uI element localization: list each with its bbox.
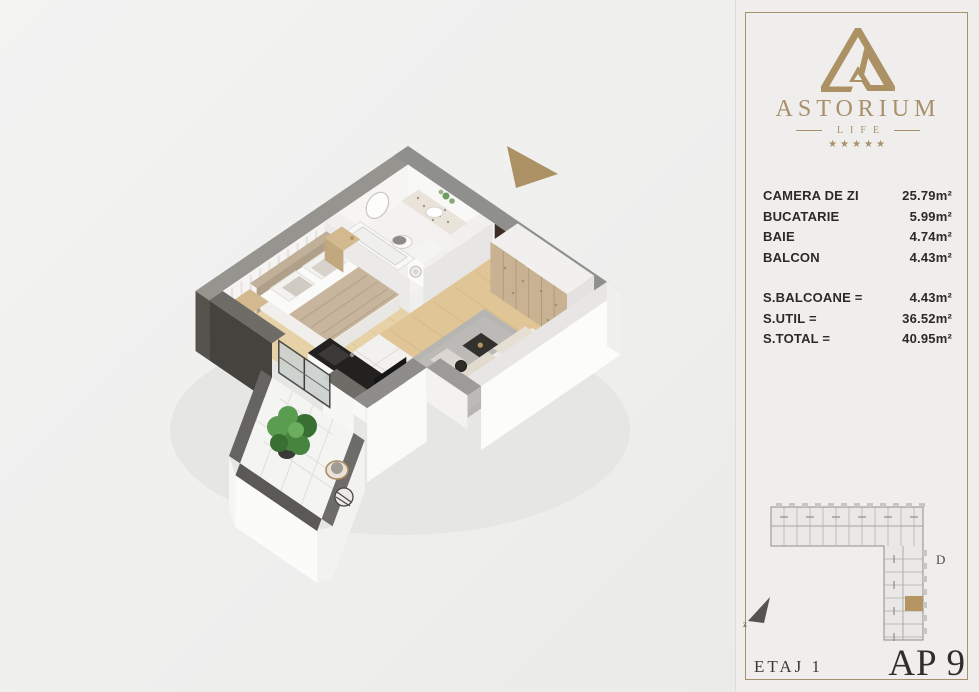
sink-icon — [426, 207, 443, 217]
compass-z-label: z — [743, 619, 747, 629]
total-label: S.UTIL = — [763, 311, 817, 326]
room-label: BALCON — [763, 250, 820, 265]
room-value: 4.74m² — [910, 229, 952, 244]
terrazzo-dot — [447, 221, 449, 223]
north-arrow-icon — [507, 146, 558, 188]
wood-knot — [504, 267, 507, 270]
balcony-tick — [923, 563, 927, 569]
building-footprint-icon: z — [736, 495, 979, 650]
apartment-number: AP 9 — [888, 642, 966, 685]
room-label: CAMERA DE ZI — [763, 188, 859, 203]
brand-logo: ASTORIUM LIFE ★★★★★ — [736, 28, 979, 150]
wood-knot — [547, 319, 550, 322]
balcony-tick — [893, 503, 899, 507]
building-outline — [771, 507, 923, 640]
terrazzo-dot — [423, 205, 425, 207]
room-value: 25.79m² — [902, 188, 952, 203]
balcony-plant-icon — [290, 435, 310, 455]
astorium-logo-icon — [821, 28, 895, 92]
room-row: BALCON4.43m² — [763, 250, 952, 271]
balcony-tick — [919, 503, 925, 507]
subtitle-dash-left — [796, 130, 822, 131]
balcony-tick — [923, 589, 927, 595]
room-label: BUCATARIE — [763, 209, 839, 224]
total-row: S.TOTAL =40.95m² — [763, 331, 952, 352]
wall-e-cap — [607, 282, 621, 355]
balcony-tick — [923, 602, 927, 608]
room-value: 4.43m² — [910, 250, 952, 265]
totals-table: S.BALCOANE =4.43m²S.UTIL =36.52m²S.TOTAL… — [763, 290, 952, 352]
balcony-tick — [776, 503, 782, 507]
balcony-tick — [802, 503, 808, 507]
room-row: BAIE4.74m² — [763, 229, 952, 250]
total-row: S.UTIL =36.52m² — [763, 311, 952, 332]
total-row: S.BALCOANE =4.43m² — [763, 290, 952, 311]
balcony-tick — [828, 503, 834, 507]
info-panel: ASTORIUM LIFE ★★★★★ CAMERA DE ZI25.79m²B… — [735, 0, 979, 692]
balcony-tick — [906, 503, 912, 507]
compass-icon — [748, 597, 770, 623]
balcony-plant-icon — [288, 422, 304, 438]
terrazzo-dot — [432, 219, 434, 221]
balcony-tick — [815, 503, 821, 507]
wood-knot — [512, 292, 515, 295]
room-label: BAIE — [763, 229, 795, 244]
balcony-tick — [789, 503, 795, 507]
wood-knot — [540, 290, 543, 293]
room-row: CAMERA DE ZI25.79m² — [763, 188, 952, 209]
brand-name: ASTORIUM — [736, 96, 979, 123]
section-label: D — [936, 552, 945, 568]
table-decor-icon — [478, 343, 483, 348]
terrazzo-dot — [417, 197, 419, 199]
room-value: 5.99m² — [910, 209, 952, 224]
building-minimap: z D — [736, 495, 979, 650]
subtitle-dash-right — [894, 130, 920, 131]
wood-knot — [555, 304, 558, 307]
total-value: 4.43m² — [910, 290, 952, 305]
toilet-lid — [393, 236, 407, 245]
total-label: S.TOTAL = — [763, 331, 830, 346]
apartment-isometric-drawing — [0, 0, 735, 692]
brand-subtitle: LIFE — [736, 125, 979, 136]
plant-flowers — [439, 190, 444, 195]
floorplan-render — [0, 0, 735, 692]
balcony-plant-icon — [270, 434, 288, 452]
sink-faucet-icon — [350, 353, 354, 357]
balcony-tick — [867, 503, 873, 507]
lamp-icon — [350, 236, 354, 240]
balcony-tick — [923, 628, 927, 634]
total-label: S.BALCOANE = — [763, 290, 863, 305]
wood-knot — [522, 280, 525, 283]
wall-west-cap — [196, 291, 210, 360]
balcony-tick — [854, 503, 860, 507]
room-row: BUCATARIE5.99m² — [763, 209, 952, 230]
washer-door-inner — [413, 269, 418, 274]
chair-cushion — [331, 462, 343, 474]
total-value: 40.95m² — [902, 331, 952, 346]
balcony-tick — [923, 550, 927, 556]
balcony-tick — [923, 576, 927, 582]
floor-label: ETAJ 1 — [754, 657, 823, 677]
total-value: 36.52m² — [902, 311, 952, 326]
plant-flowers — [449, 198, 455, 204]
room-area-table: CAMERA DE ZI25.79m²BUCATARIE5.99m²BAIE4.… — [763, 188, 952, 270]
five-stars-icon: ★★★★★ — [736, 139, 979, 150]
brand-subtitle-text: LIFE — [830, 125, 886, 136]
balcony-tick — [841, 503, 847, 507]
floorplan-sheet: { "panel": { "brand": { "name": "ASTORIU… — [0, 0, 979, 692]
terrazzo-dot — [444, 209, 446, 211]
balcony-tick — [880, 503, 886, 507]
plant-flowers — [443, 193, 450, 200]
balcony-tick — [923, 615, 927, 621]
highlighted-unit — [905, 596, 923, 611]
